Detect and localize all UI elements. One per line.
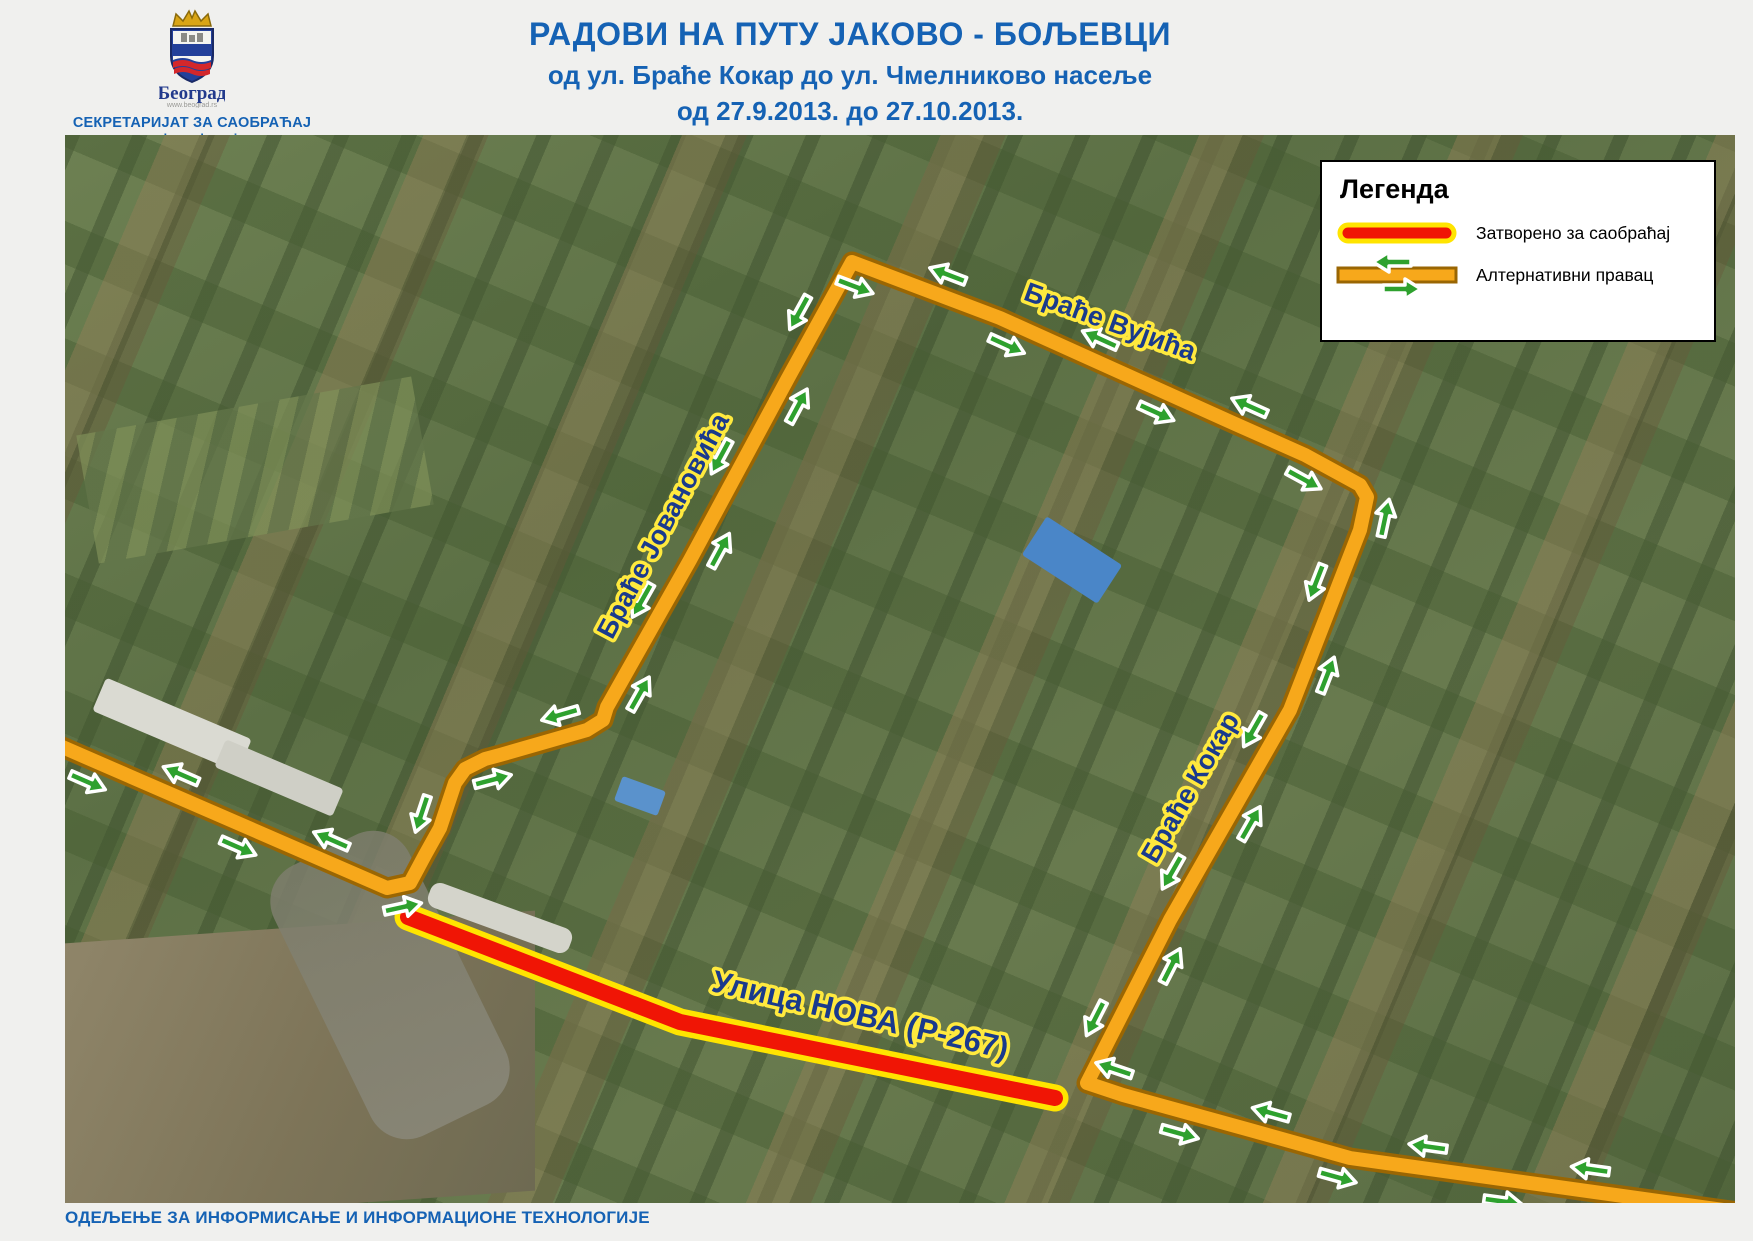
- legend-label: Затворено за саобраћај: [1476, 223, 1670, 244]
- page-subtitle-streets: од ул. Браће Кокар до ул. Чмелниково нас…: [440, 60, 1260, 91]
- header-logo-block: Београд www.beograd.rs СЕКРЕТАРИЈАТ ЗА С…: [58, 8, 326, 146]
- legend-box: Легенда Затворено за саобраћај Алтернати…: [1320, 160, 1716, 342]
- page-subtitle-dates: од 27.9.2013. до 27.10.2013.: [440, 96, 1260, 127]
- page-title-block: РАДОВИ НА ПУТУ ЈАКОВО - БОЉЕВЦИ од ул. Б…: [440, 16, 1260, 127]
- legend-item-alternative-route: Алтернативни правац: [1336, 249, 1714, 301]
- secretariat-title: СЕКРЕТАРИЈАТ ЗА САОБРАЋАЈ: [58, 115, 326, 131]
- belgrade-coat-of-arms-icon: Београд www.beograd.rs: [159, 8, 225, 108]
- page-title: РАДОВИ НА ПУТУ ЈАКОВО - БОЉЕВЦИ: [440, 16, 1260, 53]
- street-name-label: Браће Кокар: [1135, 707, 1245, 867]
- street-name-label: Браће Вујића: [1020, 277, 1200, 367]
- legend-item-closed-road: Затворено за саобраћај: [1336, 221, 1714, 245]
- closed-road-icon: [1336, 221, 1458, 245]
- logo-city-name: Београд: [159, 83, 225, 104]
- legend-label: Алтернативни правац: [1476, 265, 1653, 286]
- green-arrow-icon: [1570, 1157, 1610, 1182]
- green-arrow-icon: [1408, 1134, 1448, 1159]
- aerial-map: Браће ВујићаБраће ЈовановићаБраће КокарУ…: [65, 135, 1735, 1203]
- alternative-route-icon: [1336, 249, 1458, 301]
- belgrade-coat-of-arms-logo: Београд www.beograd.rs: [159, 8, 225, 113]
- legend-title: Легенда: [1340, 174, 1714, 205]
- logo-city-url: www.beograd.rs: [166, 102, 218, 108]
- closed-road-path: [408, 917, 1055, 1098]
- footer-department: ОДЕЉЕЊЕ ЗА ИНФОРМИСАЊЕ И ИНФОРМАЦИОНЕ ТЕ…: [65, 1208, 650, 1228]
